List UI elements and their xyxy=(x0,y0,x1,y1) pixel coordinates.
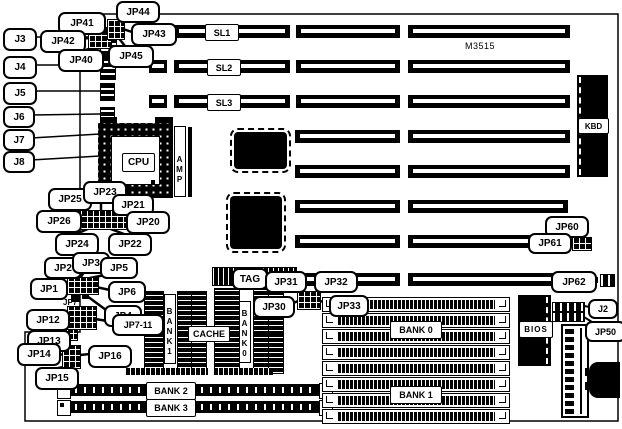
isa-slot-segment xyxy=(408,25,570,38)
cpu-label: CPU xyxy=(122,153,155,172)
isa-slot-segment xyxy=(295,200,400,213)
bank0-label: BANK 0 xyxy=(390,321,442,339)
solder-pad-strip xyxy=(125,368,208,375)
callout-pointer-line xyxy=(31,114,100,115)
jumper-block-jp60-jp61 xyxy=(572,237,592,251)
kbd-chip-label: KBD xyxy=(578,118,609,134)
chipset-qfp-1 xyxy=(234,132,287,169)
cpu-socket-edge-bar xyxy=(188,127,192,197)
callout-jp43: JP43 xyxy=(131,23,177,46)
isa-slot-segment xyxy=(408,165,570,178)
isa-slot-segment xyxy=(296,25,400,38)
slot-label-sl3: SL3 xyxy=(207,94,241,111)
cache-bank0-column-label: BANK0 xyxy=(239,301,251,363)
bank1-label: BANK 1 xyxy=(390,386,442,404)
callout-jp14: JP14 xyxy=(17,343,61,366)
power-connector-keyline xyxy=(580,328,582,414)
jumper-block-jp30-jp33 xyxy=(297,291,321,310)
callout-pointer-line xyxy=(31,156,100,160)
chipset-qfp-2 xyxy=(230,196,282,249)
socket-brand-label: AMP xyxy=(174,126,186,197)
dram-dip-socket-row xyxy=(322,345,510,360)
callout-jp62: JP62 xyxy=(551,271,597,293)
cache-bank1-column-label: BANK1 xyxy=(164,294,176,364)
callout-jp6: JP6 xyxy=(108,281,146,303)
isa-slot-segment xyxy=(408,130,570,143)
callout-jp40: JP40 xyxy=(58,49,104,72)
callout-j7: J7 xyxy=(3,129,35,151)
jumper-sub-block-2 xyxy=(82,294,89,299)
connector-j5 xyxy=(100,83,115,101)
callout-j3: J3 xyxy=(3,28,37,51)
isa-slot-segment xyxy=(295,130,400,143)
power-connector-pins xyxy=(565,328,574,414)
callout-jp26: JP26 xyxy=(36,210,82,233)
callout-tag: TAG xyxy=(232,268,268,290)
isa-slot-segment xyxy=(408,200,568,213)
callout-jp15: JP15 xyxy=(35,367,79,390)
isa-slot-segment xyxy=(408,95,570,108)
motherboard-diagram: AMP CPU KBD M3515 BANK1 BANK0 CACHE BANK… xyxy=(0,0,622,429)
dram-dip-socket-row xyxy=(322,409,510,424)
callout-jp61: JP61 xyxy=(528,233,572,254)
jp7-text: JP7 xyxy=(63,298,77,307)
callout-j4: J4 xyxy=(3,56,37,79)
jp50-pin-strip xyxy=(552,312,585,322)
callout-j6: J6 xyxy=(3,106,35,128)
callout-j2: J2 xyxy=(588,299,618,319)
solder-pad-strip xyxy=(213,368,273,375)
dram-dip-socket-row xyxy=(322,361,510,376)
callout-jp7-11: JP7-11 xyxy=(112,314,164,336)
board-model-text: M3515 xyxy=(465,41,495,51)
callout-jp32: JP32 xyxy=(314,271,358,293)
callout-jp31: JP31 xyxy=(265,271,307,293)
callout-jp33: JP33 xyxy=(329,295,369,317)
callout-jp30: JP30 xyxy=(253,296,295,318)
isa-slot-segment xyxy=(408,60,570,73)
callout-jp1: JP1 xyxy=(30,278,68,300)
callout-jp16: JP16 xyxy=(88,345,132,368)
slot-label-sl1: SL1 xyxy=(205,24,239,41)
isa-slot-segment xyxy=(149,95,167,108)
cache-label: CACHE xyxy=(188,326,230,342)
jp62-connector xyxy=(600,274,615,287)
bios-chip-label: BIOS xyxy=(519,321,553,338)
bank3-label: BANK 3 xyxy=(146,399,196,417)
cpu-pin1-marker xyxy=(151,180,155,184)
callout-jp50: JP50 xyxy=(585,321,622,342)
callout-jp12: JP12 xyxy=(26,309,70,331)
slot-label-sl2: SL2 xyxy=(207,59,241,76)
simm-bank3-end-left xyxy=(57,400,71,416)
isa-slot-segment xyxy=(296,95,400,108)
callout-jp44: JP44 xyxy=(116,1,160,23)
j2-pin-strip xyxy=(552,302,585,312)
keyboard-din-connector xyxy=(589,362,620,398)
callout-j8: J8 xyxy=(3,151,35,173)
jumper-block-jp7-jp11 xyxy=(67,306,97,330)
callout-jp45: JP45 xyxy=(108,45,154,68)
callout-jp22: JP22 xyxy=(108,233,152,256)
callout-jp5: JP5 xyxy=(100,257,138,279)
callout-j5: J5 xyxy=(3,82,37,105)
isa-slot-segment xyxy=(295,165,400,178)
callout-jp20: JP20 xyxy=(126,211,170,234)
isa-slot-segment xyxy=(295,235,400,248)
isa-slot-segment xyxy=(296,60,400,73)
callout-pointer-line xyxy=(31,134,100,138)
jumper-block-jp1-jp6 xyxy=(67,277,99,295)
bank2-label: BANK 2 xyxy=(146,382,196,400)
